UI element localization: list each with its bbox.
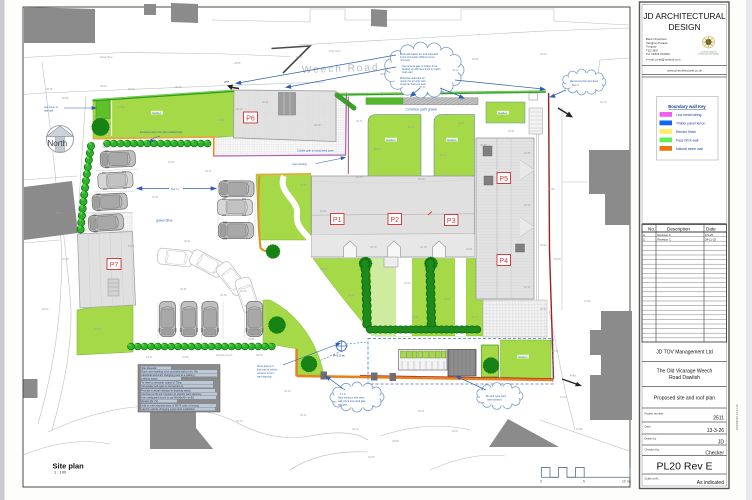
svg-text:46.78: 46.78 [420, 245, 427, 249]
svg-text:Proposed site and roof plan: Proposed site and roof plan [654, 396, 715, 402]
svg-text:48.22: 48.22 [236, 107, 243, 111]
svg-text:Garden: Garden [498, 111, 508, 115]
svg-text:bad wall: bad wall [44, 110, 54, 113]
svg-text:architectural technologists: architectural technologists [698, 53, 719, 56]
svg-text:48.72: 48.72 [296, 55, 303, 59]
svg-text:Add to meet requirements of BS: Add to meet requirements of BS74 code of… [142, 404, 200, 408]
svg-text:Boundary wall Key: Boundary wall Key [668, 104, 706, 109]
svg-text:48.80: 48.80 [380, 72, 387, 76]
svg-text:hard standing: hard standing [257, 376, 272, 379]
svg-text:www.jd-architectural.co.uk: www.jd-architectural.co.uk [667, 69, 702, 73]
svg-text:46.60: 46.60 [320, 267, 327, 271]
svg-text:electric vehicle charging equi: electric vehicle charging equipment inst… [142, 407, 196, 411]
svg-text:46.90: 46.90 [524, 203, 531, 207]
svg-text:removed: removed [400, 59, 410, 62]
svg-text:P6: P6 [246, 116, 255, 123]
svg-text:Intercom or tilt-out if system: Intercom or tilt-out if system to electr… [142, 392, 203, 396]
svg-text:48.65: 48.65 [234, 61, 241, 65]
svg-text:gravel drive: gravel drive [156, 219, 173, 223]
svg-text:North: North [48, 139, 68, 148]
svg-text:46.96: 46.96 [548, 187, 555, 191]
svg-text:Description: Description [667, 227, 690, 232]
svg-text:Project number: Project number [645, 412, 664, 416]
svg-text:47.95: 47.95 [118, 105, 125, 109]
svg-text:46.07: 46.07 [452, 429, 459, 433]
svg-text:Garden: Garden [447, 138, 457, 142]
svg-text:main wall: main wall [402, 71, 413, 74]
svg-text:46.11: 46.11 [418, 409, 425, 413]
svg-text:Render finish: Render finish [676, 130, 696, 134]
svg-text:To have a rainwater output of: To have a rainwater output of 75sq. [142, 381, 183, 385]
svg-text:new earthing: new earthing [292, 162, 307, 166]
svg-text:46.81: 46.81 [466, 247, 473, 251]
svg-text:5: 5 [583, 480, 585, 484]
svg-text:46.92: 46.92 [540, 243, 547, 247]
svg-text:Road View: Road View [100, 55, 113, 59]
svg-text:Footway path 2.0m with cobble: Footway path 2.0m with cobble track [140, 130, 183, 134]
svg-text:49.02: 49.02 [540, 52, 547, 56]
svg-text:2511: 2511 [713, 416, 724, 422]
svg-text:Revision A: Revision A [658, 233, 671, 237]
svg-text:49.10: 49.10 [600, 100, 607, 104]
svg-text:Face brick wall: Face brick wall [676, 139, 699, 143]
svg-text:46.55: 46.55 [356, 175, 363, 179]
svg-text:46.82: 46.82 [508, 129, 515, 133]
svg-text:Each new dwelling to be provid: Each new dwelling to be provided with a … [142, 370, 199, 374]
svg-text:Drawn by: Drawn by [645, 437, 657, 441]
svg-text:46.58: 46.58 [418, 177, 425, 181]
svg-text:Tel: 01803 201004: Tel: 01803 201004 [646, 52, 670, 56]
svg-text:Greywater soft type or connect: Greywater soft type or connection to [142, 384, 184, 388]
svg-text:46.05: 46.05 [368, 455, 375, 459]
svg-text:48.10: 48.10 [128, 87, 135, 91]
svg-text:4.7m: 4.7m [570, 374, 576, 378]
svg-text:46.73: 46.73 [370, 245, 377, 249]
svg-text:1 : 100: 1 : 100 [54, 470, 67, 475]
svg-text:46.41: 46.41 [152, 195, 159, 199]
svg-text:PL20 Rev E: PL20 Rev E [656, 461, 712, 473]
svg-text:DESIGN: DESIGN [668, 22, 700, 32]
svg-text:Date: Date [706, 227, 716, 232]
svg-text:Wooden fence: Wooden fence [216, 353, 233, 357]
svg-text:P7: P7 [110, 262, 119, 269]
svg-text:46.48: 46.48 [220, 293, 227, 297]
svg-text:13.85: 13.85 [576, 427, 583, 431]
svg-text:46.43: 46.43 [205, 169, 212, 173]
svg-text:gate: gate [224, 80, 230, 84]
svg-text:48.04: 48.04 [100, 84, 107, 88]
svg-text:48.40: 48.40 [314, 123, 321, 127]
svg-text:48.31: 48.31 [262, 100, 269, 104]
svg-text:from dedicated circuit to car: from dedicated circuit to car 60x90x45+ … [142, 396, 195, 400]
svg-text:Natural stone wall: Natural stone wall [676, 147, 703, 151]
svg-text:P4: P4 [499, 258, 508, 265]
svg-text:24-11-25: 24-11-25 [705, 237, 716, 241]
svg-text:Date: Date [645, 425, 651, 429]
svg-text:46.28: 46.28 [62, 257, 69, 261]
svg-text:Drop kerb: Drop kerb [329, 49, 341, 53]
svg-text:46.20: 46.20 [284, 389, 291, 393]
svg-text:46.70: 46.70 [374, 147, 381, 151]
svg-text:46.67: 46.67 [412, 315, 419, 319]
svg-text:A: A [643, 233, 645, 237]
svg-text:46.50: 46.50 [300, 183, 307, 187]
svg-text:47.06: 47.06 [584, 299, 591, 303]
svg-text:C: C [643, 237, 645, 241]
svg-text:Removed plant and shed: Removed plant and shed [570, 80, 598, 83]
svg-text:46.46: 46.46 [180, 287, 187, 291]
svg-text:46.62: 46.62 [348, 293, 355, 297]
svg-text:46.39: 46.39 [182, 355, 189, 359]
svg-text:19/03/2026 13:21:19: 19/03/2026 13:21:19 [735, 404, 739, 430]
svg-text:48.92: 48.92 [452, 68, 459, 72]
svg-text:46.36: 46.36 [256, 353, 263, 357]
svg-text:46.52: 46.52 [320, 209, 327, 213]
svg-text:46.76: 46.76 [440, 153, 447, 157]
svg-text:48.26: 48.26 [175, 85, 182, 89]
svg-text:48.30: 48.30 [218, 118, 225, 122]
svg-text:0: 0 [540, 480, 542, 484]
svg-text:Scale at A1: Scale at A1 [645, 477, 660, 481]
svg-text:Timber panel fence: Timber panel fence [676, 122, 705, 126]
svg-text:46.95: 46.95 [524, 285, 531, 289]
svg-text:46.79: 46.79 [458, 121, 465, 125]
svg-text:46.30: 46.30 [56, 211, 63, 215]
svg-text:and gate: and gate [338, 404, 348, 407]
svg-text:Reads (61.7V): Reads (61.7V) [142, 399, 159, 403]
svg-text:Cobble path to wood shed store: Cobble path to wood shed store [297, 149, 334, 153]
svg-text:JD TOV Management Ltd: JD TOV Management Ltd [656, 350, 713, 356]
svg-text:46.44: 46.44 [184, 239, 191, 243]
svg-text:47.90: 47.90 [94, 115, 101, 119]
svg-text:46.35: 46.35 [94, 327, 101, 331]
svg-text:46.16: 46.16 [236, 419, 243, 423]
svg-text:46.33: 46.33 [102, 145, 109, 149]
svg-text:46.99: 46.99 [554, 257, 561, 261]
svg-text:As indicated: As indicated [697, 480, 724, 486]
svg-text:Site disposal:: Site disposal: [142, 366, 158, 370]
svg-text:near entrance: near entrance [487, 399, 502, 402]
svg-text:46.85: 46.85 [524, 151, 531, 155]
svg-text:48.08: 48.08 [62, 96, 69, 100]
svg-text:Checked by: Checked by [645, 448, 660, 452]
svg-text:JD ARCHITECTURAL: JD ARCHITECTURAL [643, 11, 726, 21]
svg-text:9-9-25: 9-9-25 [705, 233, 714, 237]
svg-text:48.06: 48.06 [46, 87, 53, 91]
svg-text:46.68: 46.68 [444, 297, 451, 301]
svg-text:Revision C: Revision C [658, 237, 672, 241]
svg-text:Common path gravel: Common path gravel [406, 108, 438, 112]
svg-text:47.04: 47.04 [560, 395, 567, 399]
svg-text:46.49: 46.49 [240, 289, 247, 293]
svg-text:6.0 m: 6.0 m [171, 187, 179, 191]
svg-text:46.72: 46.72 [356, 119, 363, 123]
svg-text:Garden: Garden [386, 138, 396, 142]
svg-text:electrical and a EV charging p: electrical and a EV charging point at a … [142, 373, 195, 377]
svg-text:parking space: parking space [142, 377, 159, 381]
svg-text:Provide a visual indicator in: Provide a visual indicator in draining s… [142, 389, 192, 393]
svg-text:Low metal railing: Low metal railing [676, 113, 702, 117]
svg-text:Dec 4: Dec 4 [572, 84, 579, 87]
svg-text:13-3-26: 13-3-26 [707, 428, 724, 434]
svg-text:46.74: 46.74 [408, 125, 415, 129]
svg-text:H=1.2 m: H=1.2 m [333, 354, 345, 358]
svg-text:No.: No. [648, 227, 655, 232]
svg-text:P1: P1 [333, 217, 342, 224]
svg-text:Garden: Garden [152, 111, 162, 115]
svg-text:10 m: 10 m [622, 480, 630, 484]
svg-text:46.12: 46.12 [300, 413, 307, 417]
svg-text:47.02: 47.02 [552, 349, 559, 353]
svg-text:46.08: 46.08 [392, 439, 399, 443]
svg-text:46.66: 46.66 [404, 281, 411, 285]
svg-text:e-mail: jd-ad@outlook.com: e-mail: jd-ad@outlook.com [646, 58, 681, 62]
svg-text:46.24: 46.24 [42, 307, 49, 311]
svg-text:46.70: 46.70 [472, 315, 479, 319]
svg-text:Road Dawlish: Road Dawlish [669, 375, 700, 381]
svg-text:P5: P5 [499, 176, 508, 183]
svg-text:48.91: 48.91 [470, 91, 477, 95]
svg-text:46.51: 46.51 [248, 337, 255, 341]
svg-text:46.37: 46.37 [146, 355, 153, 359]
svg-text:48.88: 48.88 [419, 85, 426, 89]
svg-text:P3: P3 [447, 218, 456, 225]
svg-text:46.10: 46.10 [352, 427, 359, 431]
svg-text:Garden: Garden [518, 355, 528, 359]
svg-text:The Old Vicarage Weech: The Old Vicarage Weech [657, 369, 713, 375]
svg-text:48.95: 48.95 [472, 57, 479, 61]
svg-text:46.40: 46.40 [168, 160, 175, 164]
svg-text:46.38: 46.38 [128, 244, 135, 248]
svg-text:P2: P2 [390, 217, 399, 224]
svg-text:46.80: 46.80 [480, 143, 487, 147]
svg-text:46.97: 46.97 [540, 307, 547, 311]
